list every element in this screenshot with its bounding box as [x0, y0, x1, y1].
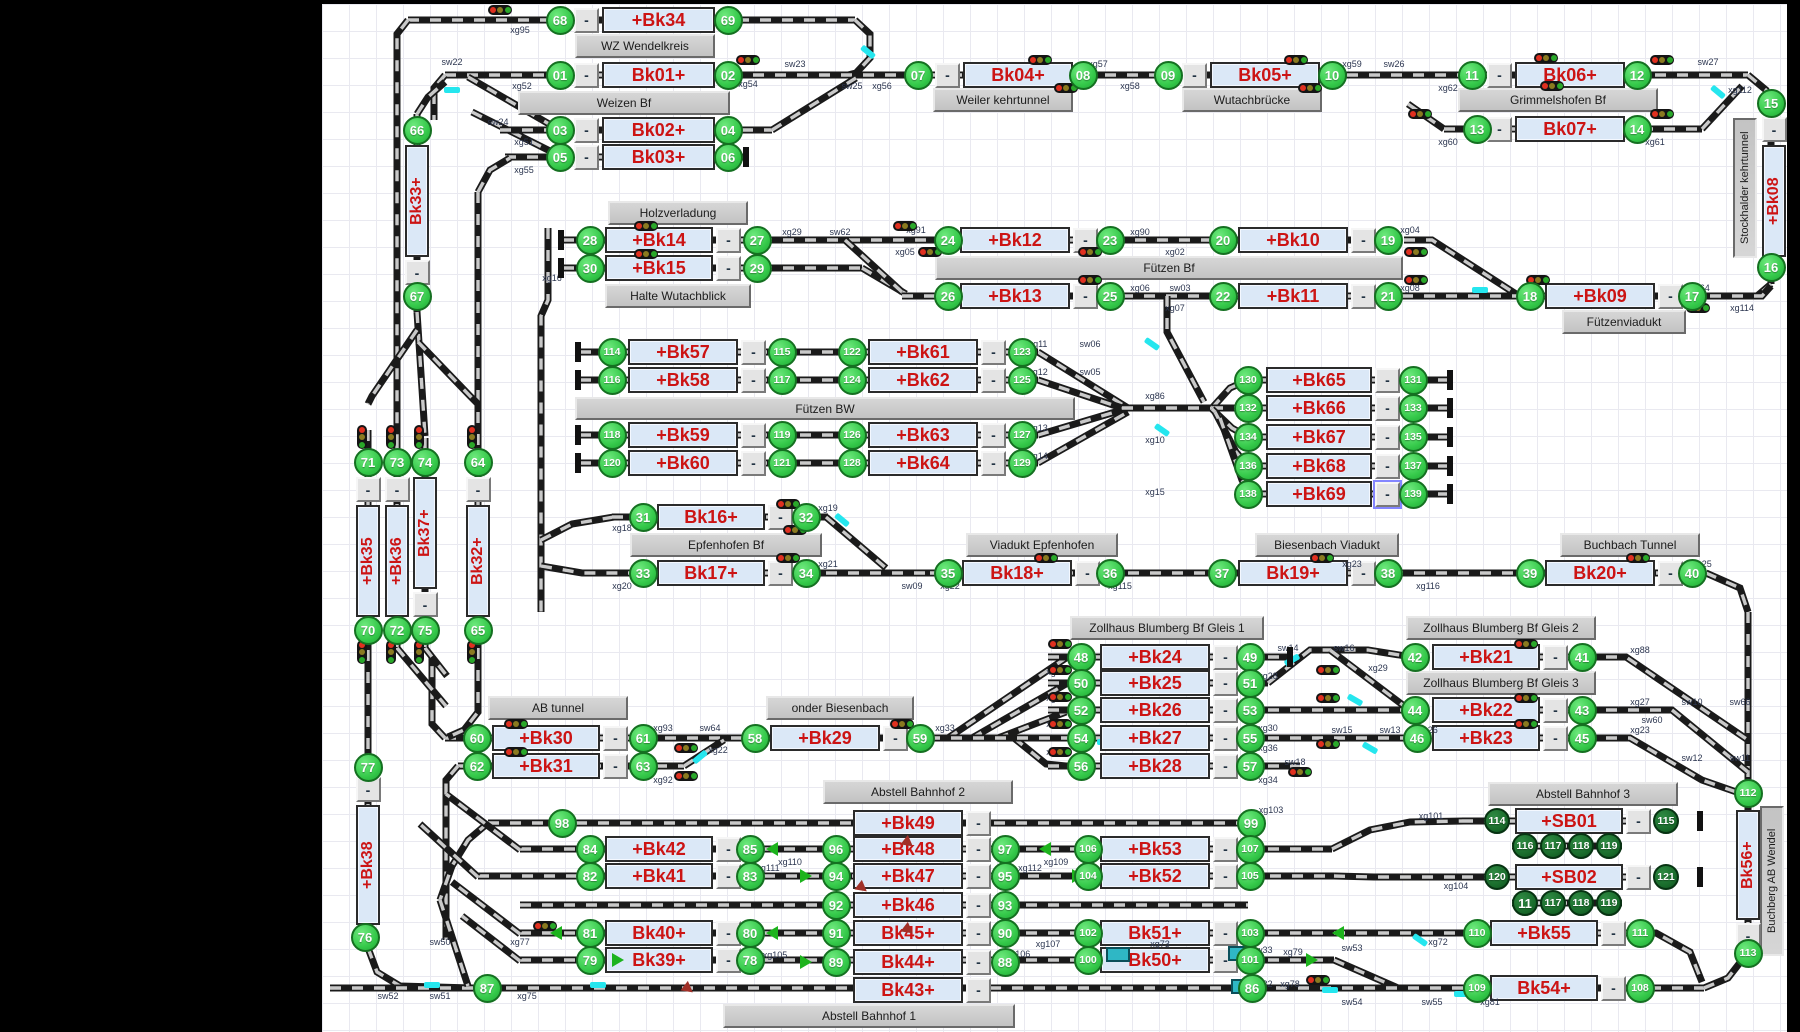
- block-bk38[interactable]: +Bk38: [356, 805, 380, 925]
- block-minus-button-bk64[interactable]: -: [981, 451, 1006, 476]
- track-signal-icon[interactable]: [1650, 55, 1674, 65]
- signal-button-95[interactable]: 95: [991, 862, 1020, 891]
- block-minus-button-bk06[interactable]: -: [1487, 63, 1512, 88]
- track-segment[interactable]: [417, 312, 425, 436]
- track-signal-icon[interactable]: [1284, 55, 1308, 65]
- track-signal-icon[interactable]: [1028, 55, 1052, 65]
- signal-button-133[interactable]: 133: [1399, 394, 1428, 423]
- track-signal-icon[interactable]: [1034, 553, 1058, 563]
- track-signal-icon[interactable]: [1514, 719, 1538, 729]
- signal-button-61[interactable]: 61: [629, 724, 658, 753]
- signal-button-59[interactable]: 59: [906, 724, 935, 753]
- track-signal-icon[interactable]: [1534, 53, 1558, 63]
- signal-button-55[interactable]: 55: [1236, 724, 1265, 753]
- block-bk60[interactable]: +Bk60: [628, 450, 738, 476]
- track-segment[interactable]: [478, 158, 510, 192]
- block-minus-button-bk21[interactable]: -: [1543, 645, 1568, 670]
- signal-button-16[interactable]: 16: [1757, 253, 1786, 282]
- block-bk29[interactable]: +Bk29: [770, 725, 880, 751]
- signal-button-119[interactable]: 119: [768, 421, 797, 450]
- signal-button-89[interactable]: 89: [822, 948, 851, 977]
- signal-button-48[interactable]: 48: [1067, 643, 1096, 672]
- signal-button-26[interactable]: 26: [934, 282, 963, 311]
- track-signal-icon[interactable]: [1404, 247, 1428, 257]
- track-signal-icon[interactable]: [1514, 639, 1538, 649]
- signal-button-70[interactable]: 70: [354, 616, 383, 645]
- track-signal-icon[interactable]: [357, 425, 367, 449]
- block-bk17[interactable]: Bk17+: [657, 560, 765, 586]
- block-bk68[interactable]: +Bk68: [1266, 453, 1372, 479]
- block-bk08[interactable]: +Bk08: [1762, 145, 1786, 257]
- block-minus-button-bk05[interactable]: -: [1182, 63, 1207, 88]
- block-minus-button-sb02[interactable]: -: [1626, 865, 1651, 890]
- block-bk11[interactable]: +Bk11: [1238, 283, 1348, 309]
- block-minus-button-bk27[interactable]: -: [1213, 726, 1238, 751]
- block-bk69[interactable]: +Bk69: [1266, 481, 1372, 507]
- block-minus-button-bk67[interactable]: -: [1375, 425, 1400, 450]
- signal-button-120[interactable]: 120: [1484, 864, 1510, 890]
- signal-button-98[interactable]: 98: [548, 809, 577, 838]
- signal-button-110[interactable]: 110: [1463, 919, 1492, 948]
- track-signal-icon[interactable]: [1408, 109, 1432, 119]
- signal-button-106[interactable]: 106: [1074, 835, 1103, 864]
- signal-button-31[interactable]: 31: [629, 503, 658, 532]
- track-signal-icon[interactable]: [1316, 739, 1340, 749]
- signal-button-113[interactable]: 113: [1734, 939, 1763, 968]
- signal-button-03[interactable]: 03: [546, 116, 575, 145]
- block-bk16[interactable]: Bk16+: [657, 504, 765, 530]
- signal-button-40[interactable]: 40: [1678, 559, 1707, 588]
- signal-button-17[interactable]: 17: [1678, 282, 1707, 311]
- signal-button-104[interactable]: 104: [1074, 862, 1103, 891]
- block-minus-button-bk34[interactable]: -: [574, 8, 599, 33]
- block-bk13[interactable]: +Bk13: [960, 283, 1070, 309]
- signal-button-118[interactable]: 118: [1568, 833, 1594, 859]
- signal-button-111[interactable]: 111: [1626, 919, 1655, 948]
- signal-button-50[interactable]: 50: [1067, 669, 1096, 698]
- signal-button-123[interactable]: 123: [1008, 338, 1037, 367]
- signal-button-118[interactable]: 118: [1568, 890, 1594, 916]
- block-bk34[interactable]: +Bk34: [602, 7, 715, 33]
- block-minus-button-bk51[interactable]: -: [1213, 921, 1238, 946]
- signal-button-119[interactable]: 119: [1596, 890, 1622, 916]
- track-signal-icon[interactable]: [1048, 639, 1072, 649]
- signal-button-102[interactable]: 102: [1074, 919, 1103, 948]
- block-bk57[interactable]: +Bk57: [628, 339, 738, 365]
- signal-button-103[interactable]: 103: [1236, 919, 1265, 948]
- signal-button-139[interactable]: 139: [1399, 480, 1428, 509]
- signal-button-114[interactable]: 114: [1484, 808, 1510, 834]
- signal-button-109[interactable]: 109: [1463, 974, 1492, 1003]
- signal-button-75[interactable]: 75: [411, 616, 440, 645]
- signal-button-56[interactable]: 56: [1067, 752, 1096, 781]
- signal-button-35[interactable]: 35: [934, 559, 963, 588]
- signal-button-44[interactable]: 44: [1401, 696, 1430, 725]
- signal-button-93[interactable]: 93: [991, 891, 1020, 920]
- track-signal-icon[interactable]: [467, 425, 477, 449]
- signal-button-82[interactable]: 82: [576, 862, 605, 891]
- signal-button-100[interactable]: 100: [1074, 946, 1103, 975]
- block-minus-button-bk04[interactable]: -: [935, 63, 960, 88]
- signal-button-14[interactable]: 14: [1623, 115, 1652, 144]
- signal-button-13[interactable]: 13: [1463, 115, 1492, 144]
- signal-button-121[interactable]: 121: [768, 449, 797, 478]
- block-minus-button-bk44[interactable]: -: [966, 950, 991, 975]
- signal-button-88[interactable]: 88: [991, 948, 1020, 977]
- signal-button-114[interactable]: 114: [598, 338, 627, 367]
- signal-button-115[interactable]: 115: [1653, 808, 1679, 834]
- signal-button-43[interactable]: 43: [1568, 696, 1597, 725]
- block-bk63[interactable]: +Bk63: [868, 422, 978, 448]
- block-minus-button-bk02[interactable]: -: [574, 118, 599, 143]
- signal-button-09[interactable]: 09: [1154, 61, 1183, 90]
- signal-button-28[interactable]: 28: [576, 226, 605, 255]
- block-minus-button-bk66[interactable]: -: [1375, 396, 1400, 421]
- track-signal-icon[interactable]: [1298, 83, 1322, 93]
- block-minus-button-bk10[interactable]: -: [1351, 228, 1376, 253]
- block-bk65[interactable]: +Bk65: [1266, 367, 1372, 393]
- signal-button-67[interactable]: 67: [403, 282, 432, 311]
- signal-button-83[interactable]: 83: [736, 862, 765, 891]
- signal-button-80[interactable]: 80: [736, 919, 765, 948]
- block-bk35[interactable]: +Bk35: [356, 505, 380, 617]
- block-minus-button-bk15[interactable]: -: [716, 256, 741, 281]
- signal-button-96[interactable]: 96: [822, 835, 851, 864]
- block-minus-button-bk22[interactable]: -: [1543, 698, 1568, 723]
- signal-button-45[interactable]: 45: [1568, 724, 1597, 753]
- signal-button-05[interactable]: 05: [546, 143, 575, 172]
- signal-button-119[interactable]: 119: [1596, 833, 1622, 859]
- signal-button-91[interactable]: 91: [822, 919, 851, 948]
- block-bk64[interactable]: +Bk64: [868, 450, 978, 476]
- signal-button-85[interactable]: 85: [736, 835, 765, 864]
- block-bk42[interactable]: +Bk42: [605, 836, 713, 862]
- signal-button-63[interactable]: 63: [629, 752, 658, 781]
- track-signal-icon[interactable]: [1078, 275, 1102, 285]
- block-minus-button-bk60[interactable]: -: [741, 451, 766, 476]
- signal-button-33[interactable]: 33: [629, 559, 658, 588]
- signal-button-121[interactable]: 121: [1653, 864, 1679, 890]
- block-bk62[interactable]: +Bk62: [868, 367, 978, 393]
- block-minus-button-bk45[interactable]: -: [966, 921, 991, 946]
- signal-button-92[interactable]: 92: [822, 891, 851, 920]
- track-signal-icon[interactable]: [893, 221, 917, 231]
- block-minus-button-bk25[interactable]: -: [1213, 671, 1238, 696]
- block-minus-button-bk63[interactable]: -: [981, 423, 1006, 448]
- signal-button-108[interactable]: 108: [1626, 974, 1655, 1003]
- signal-button-126[interactable]: 126: [838, 421, 867, 450]
- block-bk56[interactable]: Bk56+: [1736, 810, 1760, 920]
- signal-button-42[interactable]: 42: [1401, 643, 1430, 672]
- signal-button-72[interactable]: 72: [383, 616, 412, 645]
- signal-button-39[interactable]: 39: [1516, 559, 1545, 588]
- block-bk58[interactable]: +Bk58: [628, 367, 738, 393]
- signal-button-66[interactable]: 66: [403, 116, 432, 145]
- block-sb01[interactable]: +SB01: [1515, 808, 1623, 834]
- signal-button-53[interactable]: 53: [1236, 696, 1265, 725]
- signal-button-19[interactable]: 19: [1374, 226, 1403, 255]
- track-signal-icon[interactable]: [1306, 975, 1330, 985]
- block-minus-button-bk24[interactable]: -: [1213, 645, 1238, 670]
- signal-button-101[interactable]: 101: [1236, 946, 1265, 975]
- block-bk12[interactable]: +Bk12: [960, 227, 1070, 253]
- block-minus-button-bk61[interactable]: -: [981, 340, 1006, 365]
- block-bk52[interactable]: +Bk52: [1100, 863, 1210, 889]
- signal-button-04[interactable]: 04: [714, 116, 743, 145]
- signal-button-68[interactable]: 68: [546, 6, 575, 35]
- track-signal-icon[interactable]: [1048, 692, 1072, 702]
- block-bk41[interactable]: +Bk41: [605, 863, 713, 889]
- track-signal-icon[interactable]: [1316, 693, 1340, 703]
- track-signal-icon[interactable]: [674, 743, 698, 753]
- signal-button-21[interactable]: 21: [1374, 282, 1403, 311]
- block-minus-button-bk31[interactable]: -: [603, 754, 628, 779]
- signal-button-38[interactable]: 38: [1374, 559, 1403, 588]
- signal-button-99[interactable]: 99: [1237, 809, 1266, 838]
- signal-button-02[interactable]: 02: [714, 61, 743, 90]
- block-bk24[interactable]: +Bk24: [1100, 644, 1210, 670]
- signal-button-25[interactable]: 25: [1096, 282, 1125, 311]
- signal-button-77[interactable]: 77: [354, 753, 383, 782]
- block-minus-button-bk29[interactable]: -: [883, 726, 908, 751]
- signal-button-129[interactable]: 129: [1008, 449, 1037, 478]
- block-bk32[interactable]: Bk32+: [466, 505, 490, 617]
- track-signal-icon[interactable]: [736, 55, 760, 65]
- signal-button-36[interactable]: 36: [1096, 559, 1125, 588]
- block-bk44[interactable]: Bk44+: [853, 949, 963, 975]
- signal-button-76[interactable]: 76: [351, 923, 380, 952]
- signal-button-46[interactable]: 46: [1403, 724, 1432, 753]
- block-bk26[interactable]: +Bk26: [1100, 697, 1210, 723]
- signal-button-60[interactable]: 60: [463, 724, 492, 753]
- signal-button-117[interactable]: 117: [1540, 890, 1566, 916]
- block-bk18[interactable]: Bk18+: [962, 560, 1072, 586]
- track-signal-icon[interactable]: [488, 5, 512, 15]
- block-minus-button-bk35[interactable]: -: [356, 477, 381, 502]
- signal-button-01[interactable]: 01: [546, 61, 575, 90]
- track-signal-icon[interactable]: [1048, 665, 1072, 675]
- block-bk37[interactable]: Bk37+: [413, 477, 437, 589]
- signal-button-06[interactable]: 06: [714, 143, 743, 172]
- signal-button-30[interactable]: 30: [576, 254, 605, 283]
- signal-button-29[interactable]: 29: [743, 254, 772, 283]
- track-signal-icon[interactable]: [414, 425, 424, 449]
- block-minus-button-bk47[interactable]: -: [966, 864, 991, 889]
- signal-button-54[interactable]: 54: [1067, 724, 1096, 753]
- block-minus-button-bk26[interactable]: -: [1213, 698, 1238, 723]
- signal-button-128[interactable]: 128: [838, 449, 867, 478]
- track-signal-icon[interactable]: [1650, 109, 1674, 119]
- track-signal-icon[interactable]: [504, 719, 528, 729]
- block-minus-button-bk14[interactable]: -: [716, 228, 741, 253]
- block-minus-button-bk53[interactable]: -: [1213, 837, 1238, 862]
- block-minus-button-bk54[interactable]: -: [1601, 976, 1626, 1001]
- track-segment[interactable]: [1706, 573, 1748, 612]
- signal-button-11[interactable]: 11: [1512, 890, 1538, 916]
- track-signal-icon[interactable]: [1514, 693, 1538, 703]
- block-bk06[interactable]: Bk06+: [1515, 62, 1625, 88]
- signal-button-124[interactable]: 124: [838, 366, 867, 395]
- signal-button-94[interactable]: 94: [822, 862, 851, 891]
- track-signal-icon[interactable]: [1316, 665, 1340, 675]
- block-bk02[interactable]: Bk02+: [602, 117, 715, 143]
- block-bk33[interactable]: Bk33+: [405, 145, 429, 257]
- signal-button-12[interactable]: 12: [1623, 61, 1652, 90]
- block-minus-button-bk49[interactable]: -: [966, 811, 991, 836]
- signal-button-62[interactable]: 62: [463, 752, 492, 781]
- track-signal-icon[interactable]: [386, 425, 396, 449]
- signal-button-81[interactable]: 81: [576, 919, 605, 948]
- track-signal-icon[interactable]: [1288, 767, 1312, 777]
- signal-button-97[interactable]: 97: [991, 835, 1020, 864]
- block-bk36[interactable]: +Bk36: [385, 505, 409, 617]
- track-signal-icon[interactable]: [634, 221, 658, 231]
- signal-button-08[interactable]: 08: [1069, 61, 1098, 90]
- signal-button-22[interactable]: 22: [1209, 282, 1238, 311]
- block-bk15[interactable]: +Bk15: [605, 255, 713, 281]
- block-minus-button-bk13[interactable]: -: [1073, 284, 1098, 309]
- signal-button-11[interactable]: 11: [1458, 61, 1487, 90]
- signal-button-90[interactable]: 90: [991, 919, 1020, 948]
- signal-button-20[interactable]: 20: [1209, 226, 1238, 255]
- signal-button-71[interactable]: 71: [354, 448, 383, 477]
- signal-button-105[interactable]: 105: [1236, 862, 1265, 891]
- signal-button-58[interactable]: 58: [741, 724, 770, 753]
- block-bk67[interactable]: +Bk67: [1266, 424, 1372, 450]
- signal-button-116[interactable]: 116: [1512, 833, 1538, 859]
- signal-button-52[interactable]: 52: [1067, 696, 1096, 725]
- track-signal-icon[interactable]: [674, 771, 698, 781]
- block-bk27[interactable]: +Bk27: [1100, 725, 1210, 751]
- block-sb02[interactable]: +SB02: [1515, 864, 1623, 890]
- block-minus-button-bk68[interactable]: -: [1375, 454, 1400, 479]
- signal-button-37[interactable]: 37: [1208, 559, 1237, 588]
- signal-button-24[interactable]: 24: [934, 226, 963, 255]
- block-minus-button-bk52[interactable]: -: [1213, 864, 1238, 889]
- signal-button-74[interactable]: 74: [411, 448, 440, 477]
- signal-button-132[interactable]: 132: [1234, 394, 1263, 423]
- signal-button-64[interactable]: 64: [464, 448, 493, 477]
- signal-button-34[interactable]: 34: [792, 559, 821, 588]
- block-bk03[interactable]: Bk03+: [602, 144, 715, 170]
- signal-button-131[interactable]: 131: [1399, 366, 1428, 395]
- signal-button-15[interactable]: 15: [1757, 89, 1786, 118]
- signal-button-116[interactable]: 116: [598, 366, 627, 395]
- block-minus-button-sb01[interactable]: -: [1626, 809, 1651, 834]
- track-signal-icon[interactable]: [1404, 275, 1428, 285]
- signal-button-120[interactable]: 120: [598, 449, 627, 478]
- block-bk09[interactable]: +Bk09: [1545, 283, 1655, 309]
- track-signal-icon[interactable]: [504, 747, 528, 757]
- block-minus-button-bk36[interactable]: -: [385, 477, 410, 502]
- signal-button-78[interactable]: 78: [736, 946, 765, 975]
- signal-button-87[interactable]: 87: [473, 974, 502, 1003]
- block-minus-button-bk37[interactable]: -: [413, 592, 438, 617]
- signal-button-130[interactable]: 130: [1234, 366, 1263, 395]
- track-signal-icon[interactable]: [1048, 719, 1072, 729]
- signal-button-118[interactable]: 118: [598, 421, 627, 450]
- block-bk55[interactable]: +Bk55: [1490, 920, 1598, 946]
- signal-button-122[interactable]: 122: [838, 338, 867, 367]
- block-minus-button-bk17[interactable]: -: [768, 561, 793, 586]
- block-minus-button-bk59[interactable]: -: [741, 423, 766, 448]
- block-minus-button-bk46[interactable]: -: [966, 893, 991, 918]
- block-minus-button-bk69[interactable]: -: [1375, 482, 1400, 507]
- track-signal-icon[interactable]: [1626, 553, 1650, 563]
- track-signal-icon[interactable]: [1048, 747, 1072, 757]
- block-minus-button-bk28[interactable]: -: [1213, 754, 1238, 779]
- block-bk01[interactable]: Bk01+: [602, 62, 715, 88]
- signal-button-79[interactable]: 79: [576, 946, 605, 975]
- block-minus-button-bk55[interactable]: -: [1601, 921, 1626, 946]
- signal-button-57[interactable]: 57: [1236, 752, 1265, 781]
- signal-button-112[interactable]: 112: [1734, 779, 1763, 808]
- signal-button-136[interactable]: 136: [1234, 452, 1263, 481]
- block-minus-button-bk48[interactable]: -: [966, 837, 991, 862]
- block-minus-button-bk57[interactable]: -: [741, 340, 766, 365]
- signal-button-32[interactable]: 32: [792, 503, 821, 532]
- signal-button-65[interactable]: 65: [464, 616, 493, 645]
- block-minus-button-bk62[interactable]: -: [981, 368, 1006, 393]
- block-bk28[interactable]: +Bk28: [1100, 753, 1210, 779]
- track-signal-icon[interactable]: [634, 249, 658, 259]
- block-minus-button-bk58[interactable]: -: [741, 368, 766, 393]
- block-minus-button-bk11[interactable]: -: [1351, 284, 1376, 309]
- signal-button-84[interactable]: 84: [576, 835, 605, 864]
- block-bk49[interactable]: +Bk49: [853, 810, 963, 836]
- block-bk19[interactable]: Bk19+: [1238, 560, 1348, 586]
- block-minus-button-bk03[interactable]: -: [574, 145, 599, 170]
- signal-button-125[interactable]: 125: [1008, 366, 1037, 395]
- signal-button-51[interactable]: 51: [1236, 669, 1265, 698]
- signal-button-138[interactable]: 138: [1234, 480, 1263, 509]
- track-signal-icon[interactable]: [1310, 553, 1334, 563]
- block-bk59[interactable]: +Bk59: [628, 422, 738, 448]
- block-minus-button-bk43[interactable]: -: [966, 978, 991, 1003]
- block-bk25[interactable]: +Bk25: [1100, 670, 1210, 696]
- block-bk14[interactable]: +Bk14: [605, 227, 713, 253]
- block-bk43[interactable]: Bk43+: [853, 977, 963, 1003]
- block-minus-button-bk65[interactable]: -: [1375, 368, 1400, 393]
- signal-button-23[interactable]: 23: [1096, 226, 1125, 255]
- block-bk54[interactable]: Bk54+: [1490, 975, 1598, 1001]
- signal-button-10[interactable]: 10: [1318, 61, 1347, 90]
- block-minus-button-bk32[interactable]: -: [466, 477, 491, 502]
- block-minus-button-bk30[interactable]: -: [603, 726, 628, 751]
- track-segment[interactable]: [541, 228, 548, 612]
- signal-button-18[interactable]: 18: [1516, 282, 1545, 311]
- block-bk66[interactable]: +Bk66: [1266, 395, 1372, 421]
- signal-button-73[interactable]: 73: [383, 448, 412, 477]
- block-bk46[interactable]: +Bk46: [853, 892, 963, 918]
- signal-button-115[interactable]: 115: [768, 338, 797, 367]
- signal-button-134[interactable]: 134: [1234, 423, 1263, 452]
- signal-button-127[interactable]: 127: [1008, 421, 1037, 450]
- signal-button-117[interactable]: 117: [768, 366, 797, 395]
- signal-button-69[interactable]: 69: [714, 6, 743, 35]
- block-minus-button-bk08[interactable]: -: [1762, 117, 1787, 142]
- signal-button-107[interactable]: 107: [1236, 835, 1265, 864]
- block-bk10[interactable]: +Bk10: [1238, 227, 1348, 253]
- signal-button-07[interactable]: 07: [904, 61, 933, 90]
- signal-button-137[interactable]: 137: [1399, 452, 1428, 481]
- block-bk07[interactable]: Bk07+: [1515, 116, 1625, 142]
- signal-button-27[interactable]: 27: [743, 226, 772, 255]
- signal-button-41[interactable]: 41: [1568, 643, 1597, 672]
- block-minus-button-bk01[interactable]: -: [574, 63, 599, 88]
- signal-button-86[interactable]: 86: [1238, 974, 1267, 1003]
- block-bk40[interactable]: Bk40+: [605, 920, 713, 946]
